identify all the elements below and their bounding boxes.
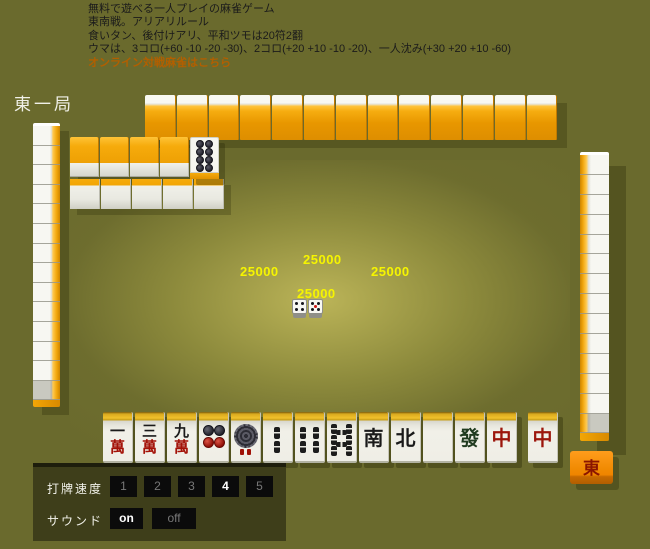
speed-label: 打牌速度	[47, 480, 103, 497]
honor-character: 發	[455, 426, 484, 450]
wall-bottom-edge	[33, 400, 60, 407]
bamboo-stick	[300, 441, 306, 453]
wall-tile	[580, 235, 609, 255]
opponent-tile-back	[431, 95, 462, 140]
pin-circle	[196, 140, 204, 148]
header-line: 食いタン、後付けアリ、平和ツモは20符2翻	[88, 30, 511, 43]
hand-tile-4pin[interactable]	[199, 412, 229, 463]
player-hand: 一萬三萬九萬南北發中中	[103, 412, 560, 463]
die	[292, 299, 306, 318]
wall-tile	[580, 195, 609, 215]
bamboo-stick	[274, 427, 280, 439]
wall-tile	[33, 302, 60, 322]
pin-circle	[214, 437, 225, 448]
die-pip	[295, 302, 298, 305]
wall-tile	[33, 244, 60, 264]
opponent-tile-back	[368, 95, 399, 140]
bamboo-stick	[313, 441, 319, 453]
seat-wind-label: 東	[570, 454, 613, 479]
bamboo-stick	[300, 427, 306, 439]
man-character: 萬	[103, 440, 132, 455]
opponent-tile-back	[145, 95, 176, 140]
bamboo-stick	[274, 441, 280, 453]
header-line: 無料で遊べる一人プレイの麻雀ゲーム	[88, 3, 511, 16]
dead-wall-front-tile	[194, 179, 224, 209]
die-pip	[317, 302, 320, 305]
hand-tile-4sou[interactable]	[295, 412, 325, 463]
speed-button-4[interactable]: 4	[212, 476, 239, 497]
pin-circle	[203, 425, 214, 436]
bamboo-stick	[336, 430, 347, 435]
hand-tile-south[interactable]: 南	[359, 412, 389, 463]
dead-wall-front-tile	[132, 179, 162, 209]
wall-tile	[580, 274, 609, 294]
dora-tile-edge	[190, 173, 219, 179]
wall-tile	[33, 381, 60, 401]
wall-tile	[580, 294, 609, 314]
header-line: 東南戦。アリアリルール	[88, 16, 511, 29]
man-number: 九	[167, 424, 196, 439]
dora-indicator-tile	[190, 137, 219, 179]
dead-wall-front-tile	[70, 179, 100, 209]
man-character: 萬	[167, 440, 196, 455]
hand-tile-haku[interactable]	[423, 412, 453, 463]
hand-tile-1man[interactable]: 一萬	[103, 412, 133, 463]
pin-circle	[205, 156, 213, 164]
wall-tile	[33, 361, 60, 381]
tile-back-top	[130, 137, 159, 163]
tile-back-top	[100, 137, 129, 163]
opponent-tile-back	[177, 95, 208, 140]
pin-circle	[205, 164, 213, 172]
opponent-tile-back	[336, 95, 367, 140]
die-top-face	[292, 299, 307, 314]
pin-circle	[203, 437, 214, 448]
hand-tile-9man[interactable]: 九萬	[167, 412, 197, 463]
bamboo-stick	[336, 442, 347, 447]
pin-circle	[196, 156, 204, 164]
dead-wall	[70, 137, 290, 211]
sound-off-button[interactable]: off	[152, 508, 196, 529]
opponent-tile-back	[240, 95, 271, 140]
wall-tile	[33, 204, 60, 224]
tile-edge	[100, 163, 129, 177]
wall-tile	[33, 224, 60, 244]
hand-tile-1pin[interactable]	[231, 412, 261, 463]
wall-tile	[580, 175, 609, 195]
opponent-tile-back	[304, 95, 335, 140]
die-pip	[295, 308, 298, 311]
dead-wall-front-tile	[163, 179, 193, 209]
dora-8pin-face	[190, 137, 219, 173]
die-pip	[311, 308, 314, 311]
wall-tile	[33, 165, 60, 185]
pin-circle	[214, 425, 225, 436]
dead-wall-stack	[70, 137, 99, 177]
pin-one-mark	[247, 449, 251, 455]
honor-character: 南	[359, 426, 388, 450]
wall-tile	[580, 394, 609, 414]
dice	[292, 299, 322, 318]
opponent-hand-top	[145, 95, 557, 140]
man-character: 萬	[135, 440, 164, 455]
wall-tile	[33, 322, 60, 342]
die	[308, 299, 322, 318]
pin-one-mark	[240, 449, 244, 455]
tile-back-top	[160, 137, 189, 163]
pin-circle	[196, 148, 204, 156]
dead-wall-stack	[160, 137, 189, 177]
sound-buttons: onoff	[110, 508, 196, 529]
sound-on-button[interactable]: on	[110, 508, 143, 529]
wall-tile	[580, 354, 609, 374]
wall-tile	[33, 263, 60, 283]
wall-tile	[33, 185, 60, 205]
seat-wind-tile: 東	[570, 451, 613, 484]
dead-wall-top-row	[70, 137, 189, 177]
score-right: 25000	[371, 264, 410, 279]
opponent-tile-back	[209, 95, 240, 140]
dead-wall-stack	[100, 137, 129, 177]
die-pip	[301, 308, 304, 311]
honor-character: 中	[487, 426, 516, 450]
wall-tile	[580, 414, 609, 434]
round-label: 東一局	[14, 90, 74, 115]
man-number: 三	[135, 424, 164, 439]
score-top: 25000	[303, 252, 342, 267]
speed-button-1[interactable]: 1	[110, 476, 137, 497]
die-top-face	[308, 299, 323, 314]
pin-one-circle	[234, 424, 258, 448]
hand-tile-chun[interactable]: 中	[487, 412, 517, 463]
dead-wall-front-tile	[101, 179, 131, 209]
hand-tile-chun2[interactable]: 中	[528, 412, 558, 463]
header-line: ウマは、3コロ(+60 -10 -20 -30)、2コロ(+20 +10 -10…	[88, 43, 511, 56]
opponent-tile-back	[399, 95, 430, 140]
dead-wall-front-row	[70, 179, 224, 209]
honor-character: 北	[391, 426, 420, 450]
wall-right	[580, 152, 609, 441]
tile-back-top	[70, 137, 99, 163]
speed-button-5[interactable]: 5	[246, 476, 273, 497]
tile-edge	[160, 163, 189, 177]
wall-tile	[580, 314, 609, 334]
die-pip	[301, 302, 304, 305]
hand-tile-3man[interactable]: 三萬	[135, 412, 165, 463]
opponent-tile-back	[463, 95, 494, 140]
die-front-face	[293, 314, 306, 318]
tile-edge	[70, 163, 99, 177]
dead-wall-stack	[130, 137, 159, 177]
man-number: 一	[103, 424, 132, 439]
control-panel: 打牌速度 12345 サウンド onoff	[33, 463, 286, 541]
wall-tile	[580, 374, 609, 394]
wall-tile	[580, 254, 609, 274]
tile-edge	[130, 163, 159, 177]
wall-tile	[33, 146, 60, 166]
hand-tile-8sou[interactable]	[327, 412, 357, 463]
speed-button-3[interactable]: 3	[178, 476, 205, 497]
wall-tile	[33, 283, 60, 303]
bamboo-stick	[346, 446, 352, 456]
wall-tile	[580, 152, 609, 175]
bamboo-stick	[313, 427, 319, 439]
wall-bottom-edge	[580, 433, 609, 441]
speed-button-2[interactable]: 2	[144, 476, 171, 497]
online-mahjong-link[interactable]: オンライン対戦麻雀はこちら	[88, 57, 511, 70]
opponent-tile-back	[527, 95, 558, 140]
hand-tile-hatsu[interactable]: 發	[455, 412, 485, 463]
pin-circle	[196, 164, 204, 172]
die-pip	[317, 308, 320, 311]
pin-circle	[205, 148, 213, 156]
opponent-tile-back	[495, 95, 526, 140]
wall-tile	[33, 342, 60, 362]
score-left: 25000	[240, 264, 279, 279]
honor-character: 中	[528, 426, 557, 450]
speed-buttons: 12345	[110, 476, 273, 497]
die-front-face	[309, 314, 322, 318]
hand-tile-2sou[interactable]	[263, 412, 293, 463]
header-text: 無料で遊べる一人プレイの麻雀ゲーム 東南戦。アリアリルール 食いタン、後付けアリ…	[88, 3, 511, 70]
wall-tile	[580, 334, 609, 354]
wall-tile	[580, 215, 609, 235]
pin-circle	[205, 140, 213, 148]
hand-tile-north[interactable]: 北	[391, 412, 421, 463]
sound-label: サウンド	[47, 512, 103, 529]
wall-left	[33, 123, 60, 407]
wall-tile	[33, 123, 60, 146]
bamboo-stick	[331, 446, 337, 456]
opponent-tile-back	[272, 95, 303, 140]
